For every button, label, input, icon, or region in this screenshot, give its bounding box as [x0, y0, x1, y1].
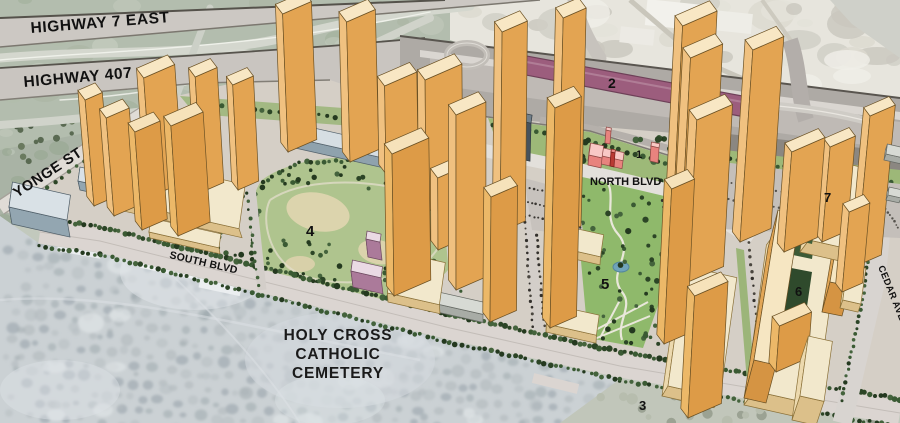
svg-text:3: 3 [639, 398, 646, 413]
svg-text:7: 7 [824, 190, 831, 205]
svg-text:4: 4 [306, 223, 315, 240]
svg-text:CEMETERY: CEMETERY [292, 365, 384, 382]
svg-text:NORTH BLVD: NORTH BLVD [590, 176, 661, 188]
svg-text:1: 1 [636, 149, 642, 161]
svg-text:CATHOLIC: CATHOLIC [295, 346, 380, 363]
svg-text:6: 6 [795, 284, 802, 299]
svg-text:HOLY CROSS: HOLY CROSS [284, 327, 393, 344]
svg-text:5: 5 [601, 276, 609, 293]
svg-text:2: 2 [608, 75, 616, 91]
